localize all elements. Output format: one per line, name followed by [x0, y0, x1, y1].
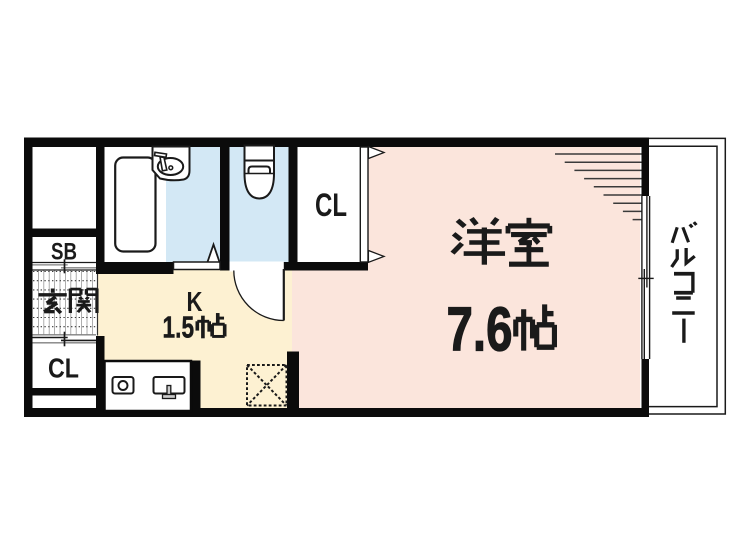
svg-text:7.6: 7.6 — [447, 296, 513, 365]
svg-text:CL: CL — [315, 187, 347, 223]
svg-text:1.5: 1.5 — [163, 310, 195, 345]
svg-text:SB: SB — [51, 238, 77, 265]
svg-text:CL: CL — [48, 352, 79, 383]
